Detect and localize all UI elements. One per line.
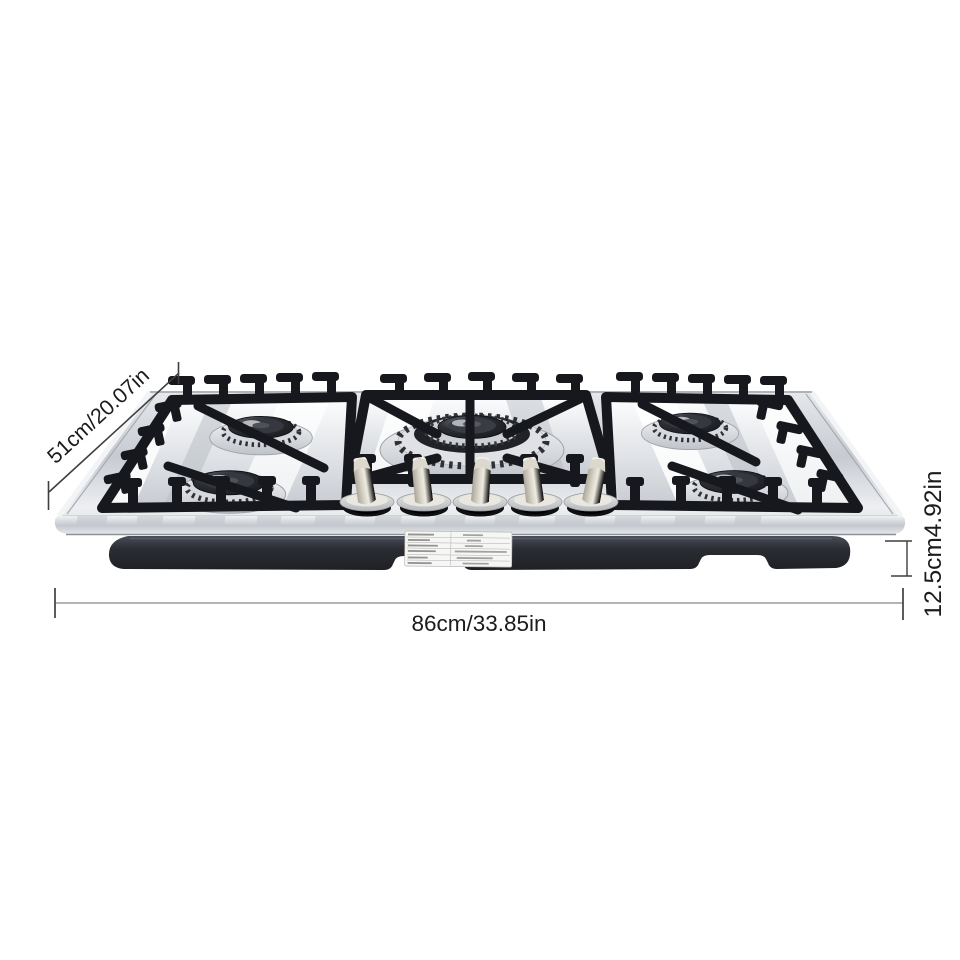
dimension-width: 86cm/33.85in [55,588,903,636]
cooktop-photo: 51cm/20.07in 12.5cm4.92in 86cm/33.85in [0,0,960,960]
spec-label [405,531,512,567]
product-image: 51cm/20.07in 12.5cm4.92in 86cm/33.85in [0,0,960,960]
dimension-label-height: 12.5cm4.92in [920,470,947,617]
dimension-height: 12.5cm4.92in [885,470,947,617]
dimension-label-width: 86cm/33.85in [411,611,546,636]
